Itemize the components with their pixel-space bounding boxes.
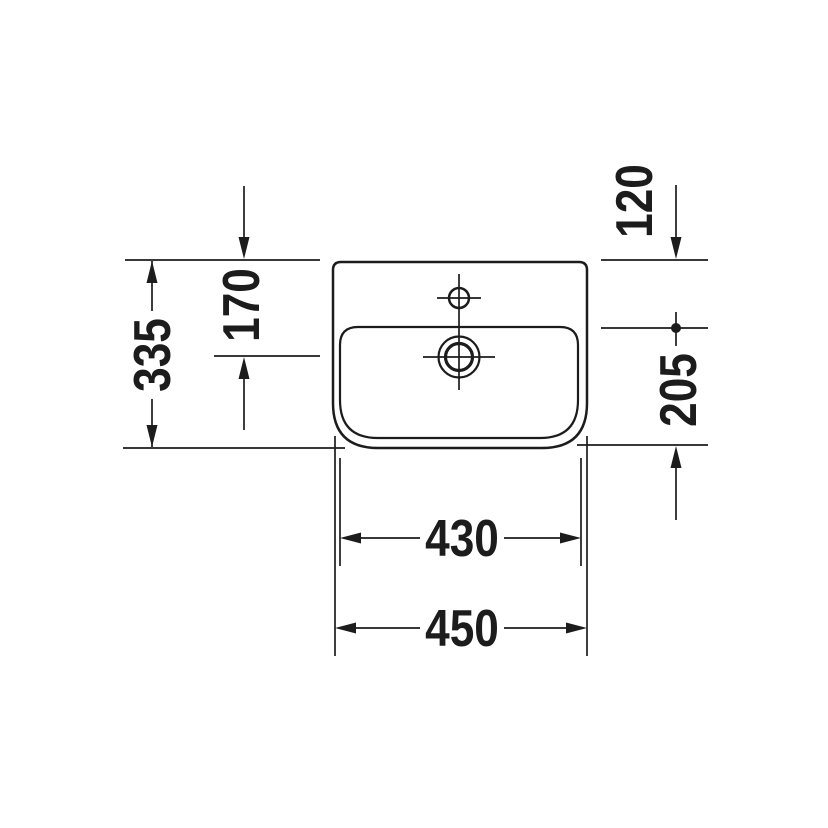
dimension-inner-width: 430	[340, 510, 581, 568]
dim-label-430: 430	[425, 510, 499, 568]
arrowhead-left	[335, 623, 356, 634]
washbasin-dimension-drawing: 335 170 120 205 430	[0, 0, 828, 828]
arrowhead-up	[239, 357, 250, 379]
arrowhead-left	[340, 533, 361, 544]
dimension-overall-width: 450	[335, 600, 587, 658]
basin	[333, 262, 587, 448]
arrowhead-up	[147, 261, 158, 283]
arrowhead-right	[560, 533, 581, 544]
dim-label-170: 170	[213, 268, 271, 342]
dim-label-335: 335	[124, 318, 182, 392]
arrowhead-down	[239, 237, 250, 259]
extension-lines	[123, 260, 708, 656]
dimension-bowl-depth: 205	[650, 353, 708, 520]
arrowhead-up	[671, 446, 682, 468]
dimension-overall-depth: 335	[124, 261, 182, 447]
dim-label-450: 450	[425, 600, 499, 658]
dimension-rim-to-bowl: 120	[606, 164, 682, 346]
dim-label-120: 120	[606, 164, 664, 238]
arrowhead-down	[147, 425, 158, 447]
arrowhead-right	[566, 623, 587, 634]
basin-outer-outline	[333, 262, 587, 448]
reference-point-dot	[671, 323, 681, 333]
dim-label-205: 205	[650, 353, 708, 427]
arrowhead-down	[671, 237, 682, 259]
technical-drawing-canvas: 335 170 120 205 430	[0, 0, 828, 828]
dimension-drain-offset: 170	[213, 186, 271, 430]
